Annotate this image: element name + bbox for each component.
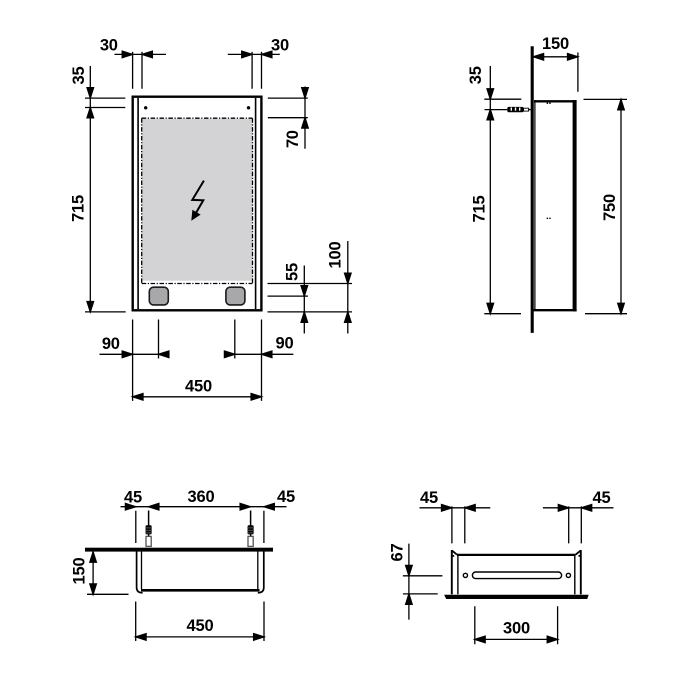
svg-text:715: 715 (70, 195, 88, 222)
svg-text:67: 67 (389, 544, 407, 562)
svg-text:35: 35 (467, 66, 485, 84)
svg-text:150: 150 (542, 35, 569, 53)
svg-text:90: 90 (276, 334, 294, 352)
svg-text:450: 450 (187, 617, 214, 635)
svg-text:45: 45 (420, 489, 438, 507)
svg-text:30: 30 (100, 37, 118, 55)
svg-text:300: 300 (503, 619, 530, 637)
svg-text:715: 715 (471, 196, 489, 223)
svg-text:45: 45 (593, 489, 611, 507)
svg-text:35: 35 (70, 67, 88, 85)
svg-text:90: 90 (102, 335, 120, 353)
svg-text:100: 100 (327, 242, 345, 269)
svg-text:45: 45 (277, 488, 295, 506)
svg-text:55: 55 (284, 263, 302, 281)
svg-text:360: 360 (188, 488, 215, 506)
svg-text:150: 150 (71, 558, 89, 585)
svg-text:450: 450 (185, 378, 212, 396)
svg-text:750: 750 (601, 194, 619, 221)
svg-text:45: 45 (124, 489, 142, 507)
svg-text:70: 70 (284, 130, 302, 148)
svg-text:30: 30 (271, 37, 289, 55)
